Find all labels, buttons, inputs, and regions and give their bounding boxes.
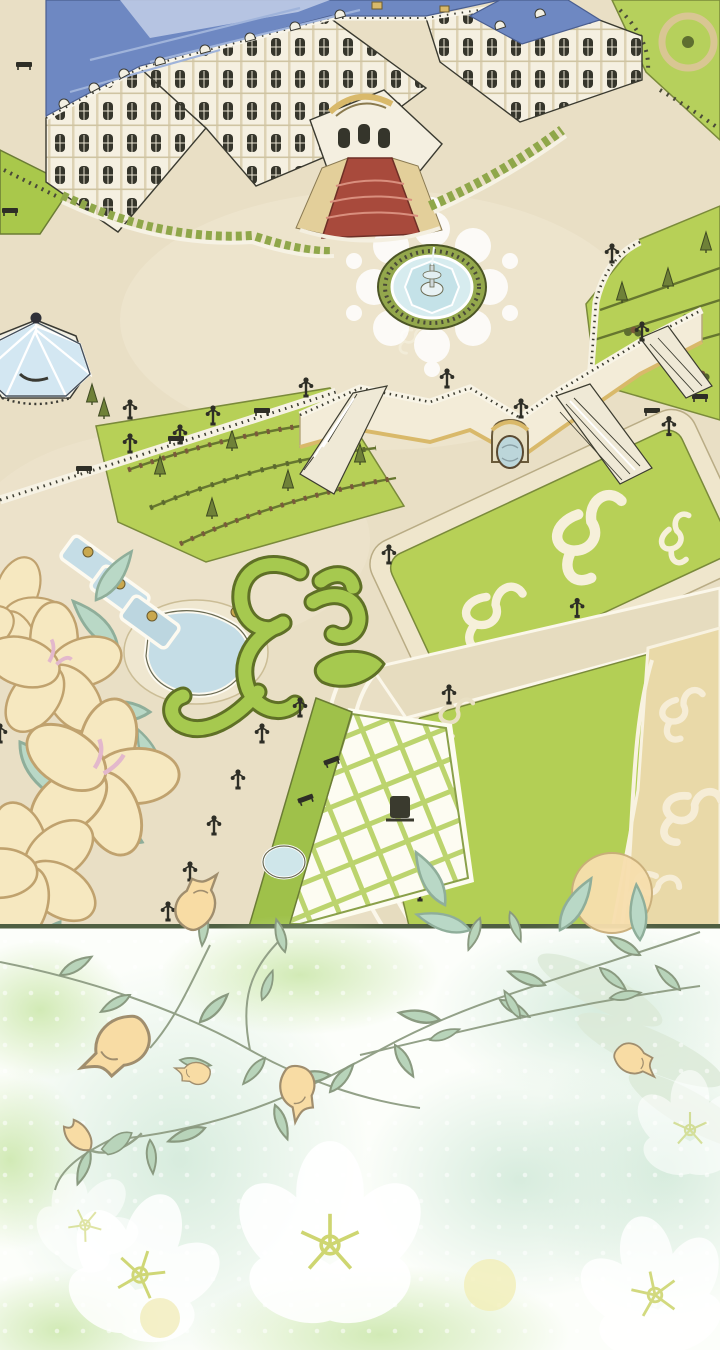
palace-garden-illustration bbox=[0, 0, 720, 1350]
gazebo-finial bbox=[31, 313, 42, 324]
grotto-niche bbox=[492, 420, 528, 468]
webtoon-panel bbox=[0, 0, 720, 1350]
upper-panel-garden-scene bbox=[0, 0, 720, 985]
yellow-glow bbox=[140, 1298, 180, 1338]
yellow-glow bbox=[464, 1259, 516, 1311]
gold-chimney bbox=[440, 6, 449, 12]
gold-chimney bbox=[372, 2, 382, 9]
